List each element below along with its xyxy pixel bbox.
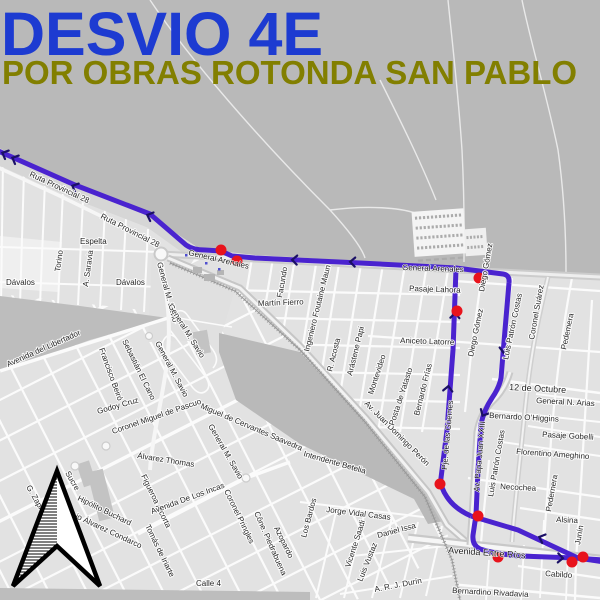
svg-text:Martín Fierro: Martín Fierro — [258, 297, 305, 308]
svg-text:Pasaje Lahora: Pasaje Lahora — [409, 284, 461, 295]
svg-text:Cabildo: Cabildo — [545, 569, 573, 580]
svg-text:Dávalos: Dávalos — [6, 278, 35, 287]
svg-text:Necochea: Necochea — [500, 482, 537, 493]
svg-text:Aniceto Latorre: Aniceto Latorre — [400, 336, 455, 347]
svg-text:Alsina: Alsina — [556, 515, 579, 525]
svg-text:POR OBRAS ROTONDA SAN PABLO: POR OBRAS ROTONDA SAN PABLO — [2, 54, 577, 91]
svg-text:Espelta: Espelta — [80, 237, 107, 246]
svg-text:Dávalos: Dávalos — [116, 278, 145, 287]
svg-text:Calle 4: Calle 4 — [196, 579, 221, 588]
